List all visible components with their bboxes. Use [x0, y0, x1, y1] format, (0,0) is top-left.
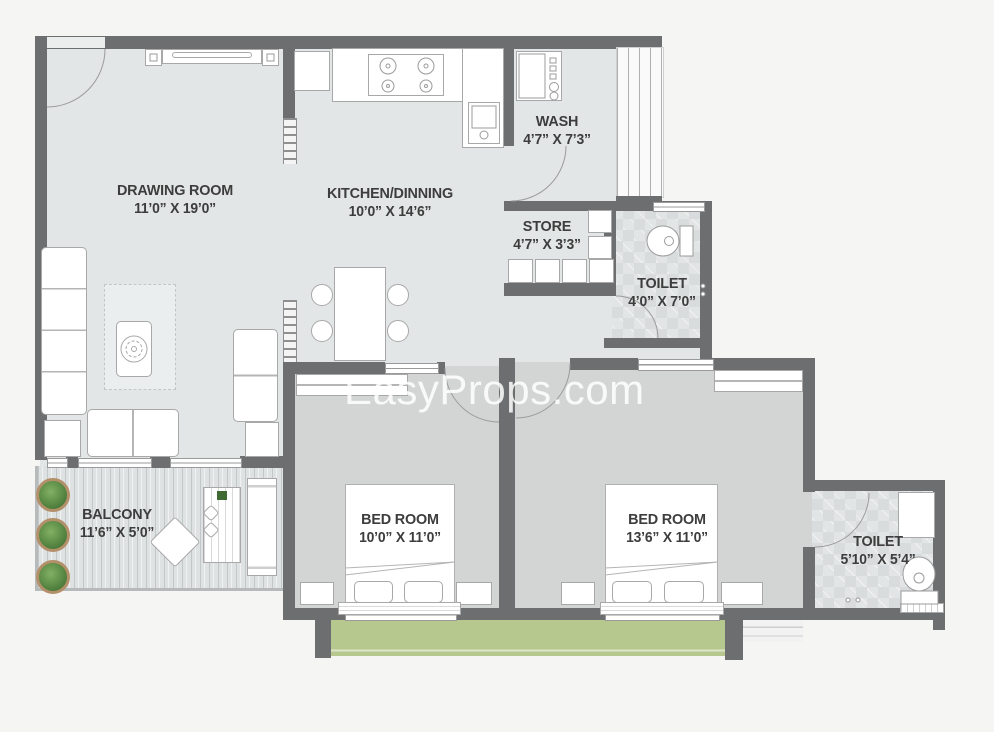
- room-label-drawing-room: DRAWING ROOM 11’0” X 19’0”: [117, 181, 233, 219]
- bed-2-fold-line: [605, 562, 718, 575]
- room-dims: 5’10” X 5’4”: [840, 551, 915, 570]
- watermark: EasyProps.com: [344, 366, 645, 414]
- room-name: DRAWING ROOM: [117, 181, 233, 200]
- room-dims: 4’0” X 7’0”: [628, 293, 696, 312]
- room-name: BALCONY: [80, 505, 154, 524]
- room-label-store: STORE 4’7” X 3’3”: [513, 217, 581, 255]
- room-dims: 4’7” X 7’3”: [523, 131, 591, 150]
- room-label-balcony: BALCONY 11’6” X 5’0”: [80, 505, 154, 543]
- room-label-wash: WASH 4’7” X 7’3”: [523, 112, 591, 150]
- room-dims: 10’0” X 14’6”: [327, 203, 453, 222]
- stove-burner-3: [382, 80, 394, 92]
- room-name: STORE: [513, 217, 581, 236]
- floor-plan: DRAWING ROOM 11’0” X 19’0” KITCHEN/DINNI…: [0, 0, 994, 732]
- room-dims: 10’0” X 11’0”: [359, 529, 441, 548]
- room-label-bedroom-2: BED ROOM 13’6” X 11’0”: [626, 510, 708, 548]
- room-name: TOILET: [840, 532, 915, 551]
- flower-decor: [121, 336, 147, 362]
- sink-basin: [472, 106, 496, 128]
- room-label-toilet-1: TOILET 4’0” X 7’0”: [628, 274, 696, 312]
- stove-burner-2: [418, 58, 434, 74]
- washing-machine-knob-1: [550, 83, 559, 92]
- room-name: BED ROOM: [359, 510, 441, 529]
- room-label-kitchen: KITCHEN/DINNING 10’0” X 14’6”: [327, 184, 453, 222]
- room-name: TOILET: [628, 274, 696, 293]
- room-dims: 11’6” X 5’0”: [80, 524, 154, 543]
- washing-machine-door: [519, 54, 545, 98]
- room-dims: 13’6” X 11’0”: [626, 529, 708, 548]
- room-name: BED ROOM: [626, 510, 708, 529]
- door-arc-wash: [511, 146, 566, 201]
- washing-machine-knob-2: [550, 92, 558, 100]
- stove-burner-4: [420, 80, 432, 92]
- bed-1-fold-line: [345, 562, 455, 575]
- room-dims: 4’7” X 3’3”: [513, 236, 581, 255]
- door-arc-main-entrance: [47, 49, 105, 107]
- room-name: WASH: [523, 112, 591, 131]
- stove-burner-1: [380, 58, 396, 74]
- sink-drain: [480, 131, 488, 139]
- room-name: KITCHEN/DINNING: [327, 184, 453, 203]
- room-label-bedroom-1: BED ROOM 10’0” X 11’0”: [359, 510, 441, 548]
- room-label-toilet-2: TOILET 5’10” X 5’4”: [840, 532, 915, 570]
- room-dims: 11’0” X 19’0”: [117, 200, 233, 219]
